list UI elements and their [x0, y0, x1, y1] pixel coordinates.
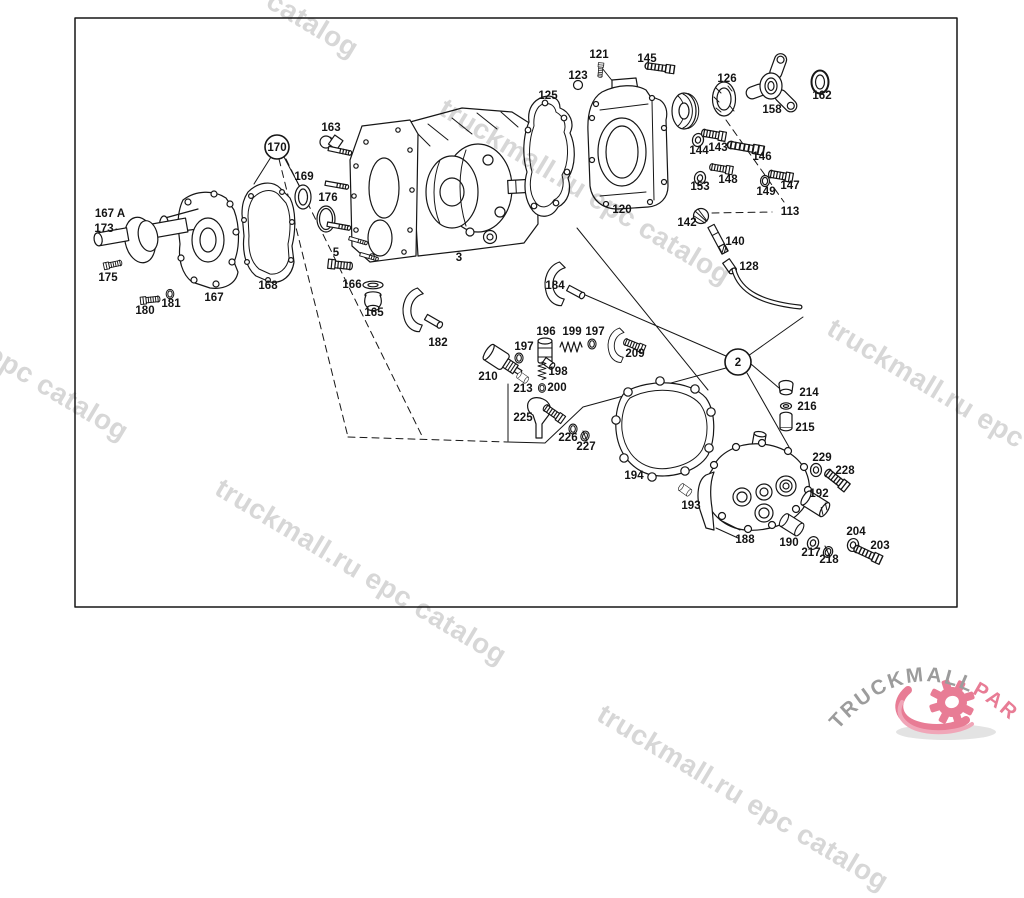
- part-label-173: 173: [94, 223, 113, 235]
- part-bearing-ribbed: [672, 93, 699, 129]
- part-rear-housing-120: [588, 78, 699, 209]
- part-label-175: 175: [98, 272, 118, 284]
- part-label-145: 145: [637, 53, 657, 65]
- part-label-149: 149: [756, 186, 775, 198]
- part-label-169: 169: [294, 171, 313, 183]
- ring-197-right: [588, 339, 596, 349]
- part-label-148: 148: [718, 174, 738, 186]
- part-label-203: 203: [870, 540, 889, 552]
- part-label-198: 198: [548, 366, 568, 378]
- part-label-153: 153: [690, 181, 709, 193]
- page: 167 A17317518018116716816917616351661651…: [0, 0, 1024, 750]
- callout-label-170: 170: [267, 142, 286, 154]
- part-label-144: 144: [689, 145, 709, 157]
- part-label-181: 181: [161, 298, 181, 310]
- ring-149: [761, 176, 770, 187]
- part-plug-215: [780, 412, 792, 431]
- diagram-border: [75, 18, 957, 607]
- part-ring-216: [781, 403, 792, 409]
- part-washer-166: [363, 281, 383, 289]
- part-label-227: 227: [576, 441, 595, 453]
- part-label-199: 199: [562, 326, 581, 338]
- part-label-166: 166: [342, 279, 361, 291]
- part-hose: [734, 270, 800, 307]
- part-label-147: 147: [780, 180, 799, 192]
- part-label-200: 200: [547, 382, 566, 394]
- bolt-180: [140, 295, 160, 304]
- spring-199: [560, 342, 582, 352]
- part-label-125: 125: [538, 90, 558, 102]
- part-label-194: 194: [624, 470, 644, 482]
- part-label-167: 167: [204, 292, 223, 304]
- part-label-146: 146: [752, 151, 771, 163]
- part-label-218: 218: [819, 554, 839, 566]
- part-label-165: 165: [364, 307, 384, 319]
- part-label-176: 176: [318, 192, 337, 204]
- part-label-204: 204: [846, 526, 866, 538]
- part-label-197: 197: [585, 326, 604, 338]
- part-label-162: 162: [812, 90, 831, 102]
- part-label-142: 142: [677, 217, 696, 229]
- part-label-229: 229: [812, 452, 831, 464]
- part-oring-176: [317, 206, 335, 232]
- part-label-128: 128: [739, 261, 759, 273]
- part-fork-182: [403, 288, 423, 332]
- washer-229: [811, 464, 822, 477]
- part-label-193: 193: [681, 500, 700, 512]
- part-label-113: 113: [781, 206, 800, 218]
- part-bearing-126: [713, 82, 736, 116]
- brand-logo-text: TRUCKMALLPARTS: [824, 640, 1023, 733]
- bolt-148: [709, 163, 733, 175]
- pin-193: [677, 483, 693, 497]
- part-label-188: 188: [735, 534, 755, 546]
- bolt-143: [701, 128, 727, 141]
- part-gasket-125: [524, 96, 574, 216]
- ring-200: [538, 384, 545, 393]
- part-label-120: 120: [612, 204, 631, 216]
- part-label-228: 228: [835, 465, 855, 477]
- part-label-190: 190: [779, 537, 798, 549]
- part-label-196: 196: [536, 326, 555, 338]
- part-label-121: 121: [589, 49, 609, 61]
- part-label-143: 143: [708, 142, 727, 154]
- part-label-192: 192: [809, 488, 828, 500]
- bolt-121: [597, 63, 604, 78]
- pin-182: [424, 314, 443, 329]
- part-label-167A: 167 A: [95, 208, 125, 220]
- part-gasket-194: [612, 377, 715, 481]
- part-gasket-168: [242, 183, 295, 282]
- part-label-214: 214: [799, 387, 819, 399]
- part-label-225: 225: [513, 412, 533, 424]
- part-label-216: 216: [797, 401, 816, 413]
- part-label-197: 197: [514, 341, 533, 353]
- part-label-217: 217: [801, 547, 820, 559]
- part-label-168: 168: [258, 280, 278, 292]
- part-label-163: 163: [321, 122, 340, 134]
- part-cap-214: [779, 381, 793, 395]
- ring-197-left: [515, 353, 523, 363]
- part-label-210: 210: [478, 371, 497, 383]
- part-label-184: 184: [545, 280, 565, 292]
- part-label-123: 123: [568, 70, 587, 82]
- part-label-182: 182: [428, 337, 447, 349]
- part-label-5: 5: [333, 247, 340, 259]
- part-label-180: 180: [135, 305, 154, 317]
- parts-diagram-canvas: 167 A17317518018116716816917616351661651…: [0, 0, 1024, 750]
- part-label-126: 126: [717, 73, 736, 85]
- part-label-213: 213: [513, 383, 532, 395]
- callout-label-2: 2: [735, 357, 741, 369]
- part-label-215: 215: [795, 422, 815, 434]
- part-label-209: 209: [625, 348, 644, 360]
- part-label-140: 140: [725, 236, 744, 248]
- pin-184: [566, 285, 585, 300]
- part-front-retainer-167: [160, 191, 240, 288]
- part-seal-169: [295, 185, 311, 209]
- bolt-175: [103, 259, 122, 270]
- part-label-226: 226: [558, 432, 577, 444]
- part-fork-209: [608, 328, 624, 363]
- part-label-158: 158: [762, 104, 782, 116]
- part-label-3: 3: [456, 252, 462, 264]
- brand-logo: TRUCKMALLPARTS: [824, 640, 1024, 750]
